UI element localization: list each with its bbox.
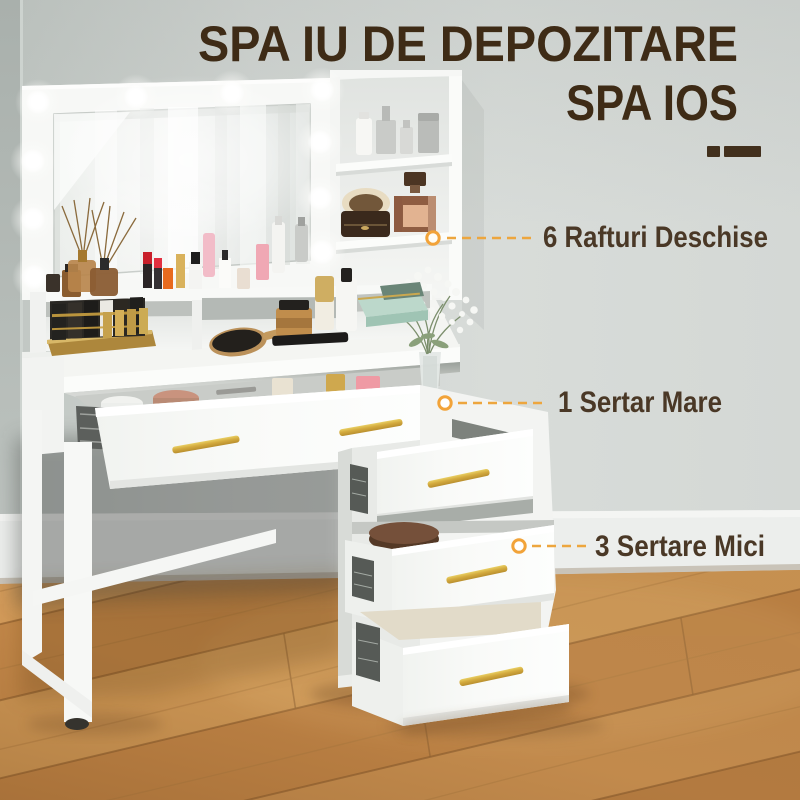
svg-text:SPA IU DE DEPOZITARE: SPA IU DE DEPOZITARE <box>198 16 738 72</box>
svg-text:6 Rafturi Deschise: 6 Rafturi Deschise <box>543 221 768 254</box>
svg-text:1 Sertar Mare: 1 Sertar Mare <box>558 386 722 419</box>
svg-text:3 Sertare Mici: 3 Sertare Mici <box>595 530 765 563</box>
svg-text:SPA IOS: SPA IOS <box>566 75 738 131</box>
